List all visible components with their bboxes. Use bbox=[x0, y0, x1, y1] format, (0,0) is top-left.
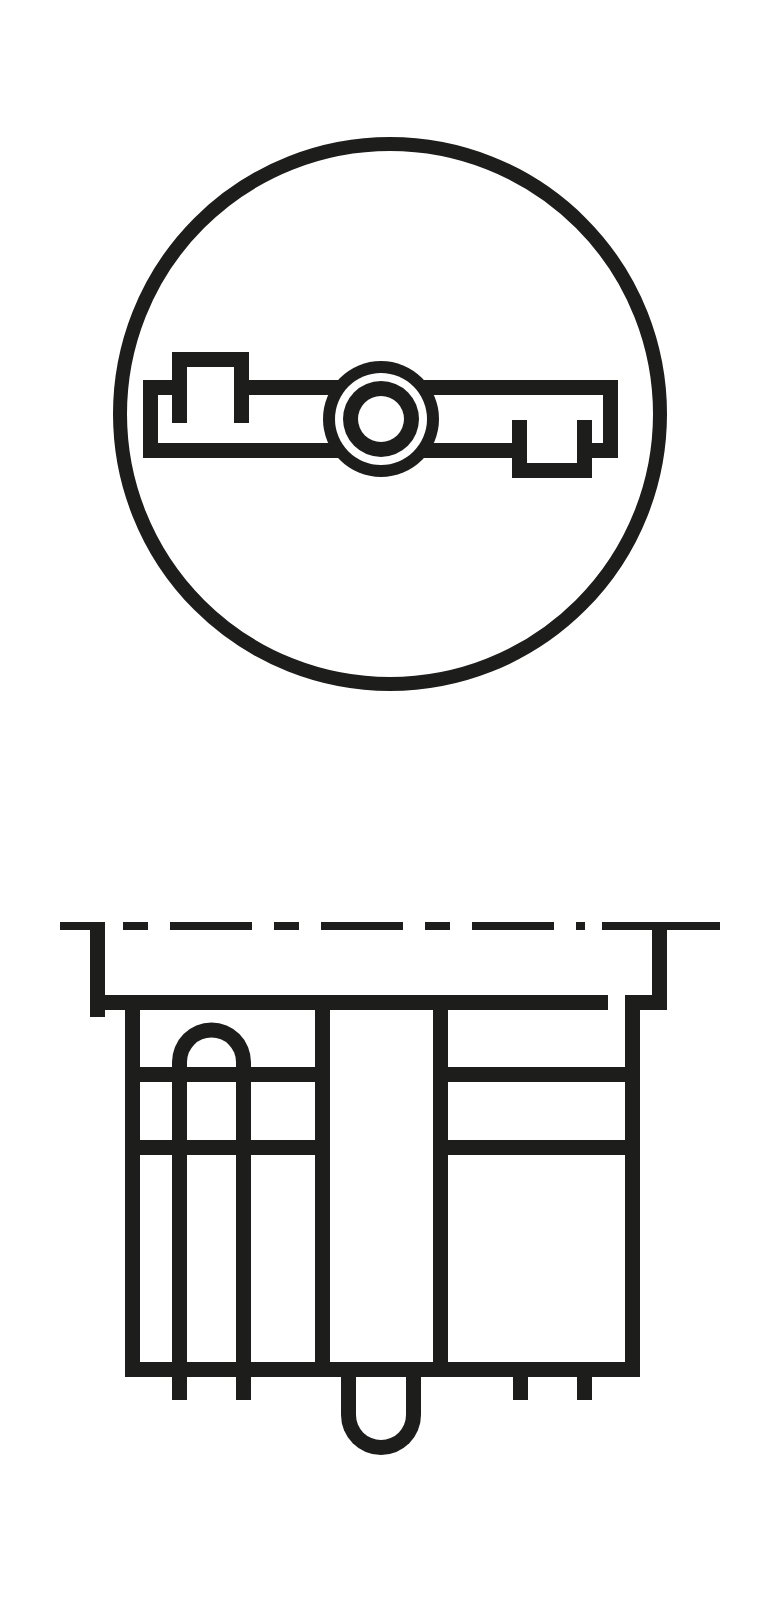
arch-leg-right bbox=[236, 1062, 251, 1400]
right-tab-leg-right bbox=[577, 420, 592, 463]
groove-upper-left bbox=[140, 1067, 315, 1082]
contact-stub-right-inner bbox=[513, 1377, 528, 1400]
left-tab-leg-left bbox=[172, 367, 187, 423]
groove-lower-left bbox=[140, 1140, 315, 1155]
center-keel-interior bbox=[356, 1377, 406, 1440]
wedge-base-bulb-front-view-icon bbox=[60, 922, 720, 1455]
wedge-base-bulb-top-view-icon bbox=[120, 144, 660, 684]
groove-lower-right bbox=[448, 1140, 625, 1155]
right-tab-bottom bbox=[512, 463, 592, 478]
center-rib-left bbox=[315, 1010, 330, 1362]
center-rib-right bbox=[433, 1010, 448, 1362]
right-tab-leg-left bbox=[512, 420, 527, 463]
base-wall-left bbox=[125, 1010, 140, 1377]
center-boss-hole bbox=[358, 396, 404, 442]
right-tab-interior bbox=[527, 420, 577, 463]
base-wall-right bbox=[625, 995, 640, 1377]
left-tab-interior bbox=[187, 367, 234, 423]
bulb-pictogram bbox=[0, 0, 780, 1600]
left-tab-top bbox=[172, 352, 249, 367]
contact-stub-right-outer bbox=[577, 1377, 592, 1400]
arch-leg-left bbox=[172, 1062, 187, 1400]
base-bottom-bar bbox=[125, 1362, 640, 1377]
left-tab-leg-right bbox=[234, 367, 249, 423]
pictogram-page bbox=[0, 0, 780, 1600]
shoulder-bar bbox=[90, 995, 608, 1010]
groove-upper-right bbox=[448, 1067, 625, 1082]
